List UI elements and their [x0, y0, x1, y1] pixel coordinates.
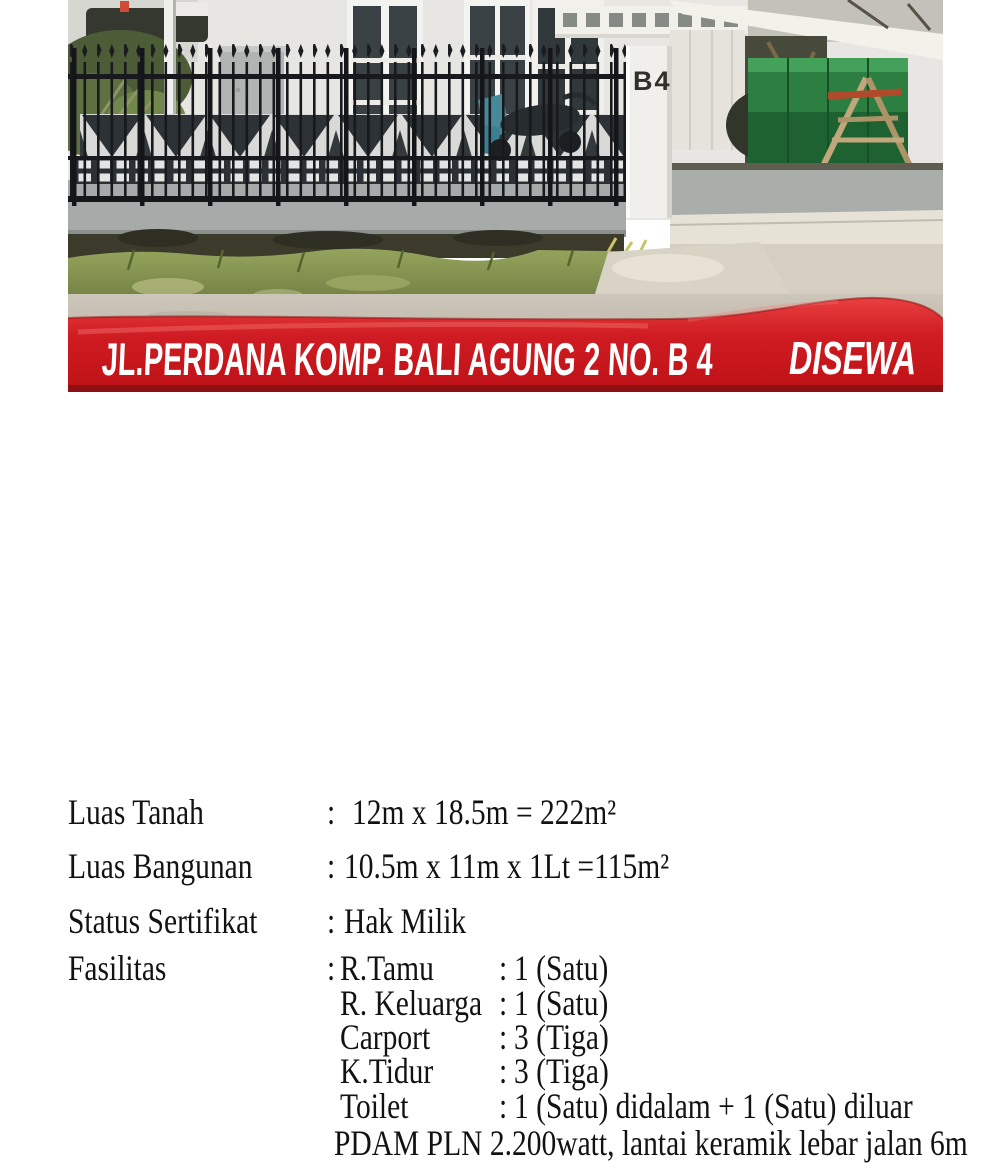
facility-colon: :	[499, 948, 507, 988]
banner-status-disewa: DISEWA	[789, 335, 916, 381]
iron-fence	[68, 44, 626, 206]
facility-name: R.Tamu	[340, 948, 434, 988]
detail-label: Status Sertifikat	[68, 901, 257, 941]
facility-value: 3 (Tiga)	[514, 1051, 609, 1091]
property-photo: B4	[68, 0, 943, 335]
detail-colon: :	[327, 792, 335, 832]
detail-row-luas-bangunan: Luas Bangunan : 10.5m x 11m x 1Lt =115m²	[0, 846, 1000, 886]
facility-row: K.Tidur : 3 (Tiga)	[0, 1051, 1000, 1091]
detail-colon: :	[327, 948, 335, 988]
facility-value: 1 (Satu) didalam + 1 (Satu) diluar	[514, 1086, 913, 1126]
banner-address: JL.PERDANA KOMP. BALI AGUNG 2 NO. B 4	[101, 336, 714, 382]
detail-colon: :	[327, 901, 335, 941]
detail-label: Luas Bangunan	[68, 846, 252, 886]
detail-row-status-sertifikat: Status Sertifikat : Hak Milik	[0, 901, 1000, 941]
facility-colon: :	[499, 1051, 507, 1091]
detail-colon: :	[327, 846, 335, 886]
detail-value: 12m x 18.5m = 222m²	[352, 792, 616, 832]
b4-pillar: B4	[626, 46, 672, 218]
facility-row: Toilet : 1 (Satu) didalam + 1 (Satu) dil…	[0, 1086, 1000, 1126]
facility-name: K.Tidur	[340, 1051, 433, 1091]
detail-row-fasilitas: Fasilitas : R.Tamu : 1 (Satu)	[0, 948, 1000, 988]
facility-value: 1 (Satu)	[514, 948, 608, 988]
detail-label: Fasilitas	[68, 948, 166, 988]
details-section: Luas Tanah : 12m x 18.5m = 222m² Luas Ba…	[0, 392, 1000, 750]
detail-value: Hak Milik	[344, 901, 466, 941]
detail-value: 10.5m x 11m x 1Lt =115m²	[344, 846, 669, 886]
detail-label: Luas Tanah	[68, 792, 204, 832]
facility-name: Toilet	[340, 1086, 408, 1126]
detail-row-luas-tanah: Luas Tanah : 12m x 18.5m = 222m²	[0, 792, 1000, 832]
footer-note: PDAM PLN 2.200watt, lantai keramik lebar…	[334, 1123, 968, 1163]
house-number-sign: B4	[633, 66, 672, 96]
property-photo-illustration: B4	[68, 0, 943, 335]
facility-colon: :	[499, 1086, 507, 1126]
flyer-page: B4	[0, 0, 1000, 750]
